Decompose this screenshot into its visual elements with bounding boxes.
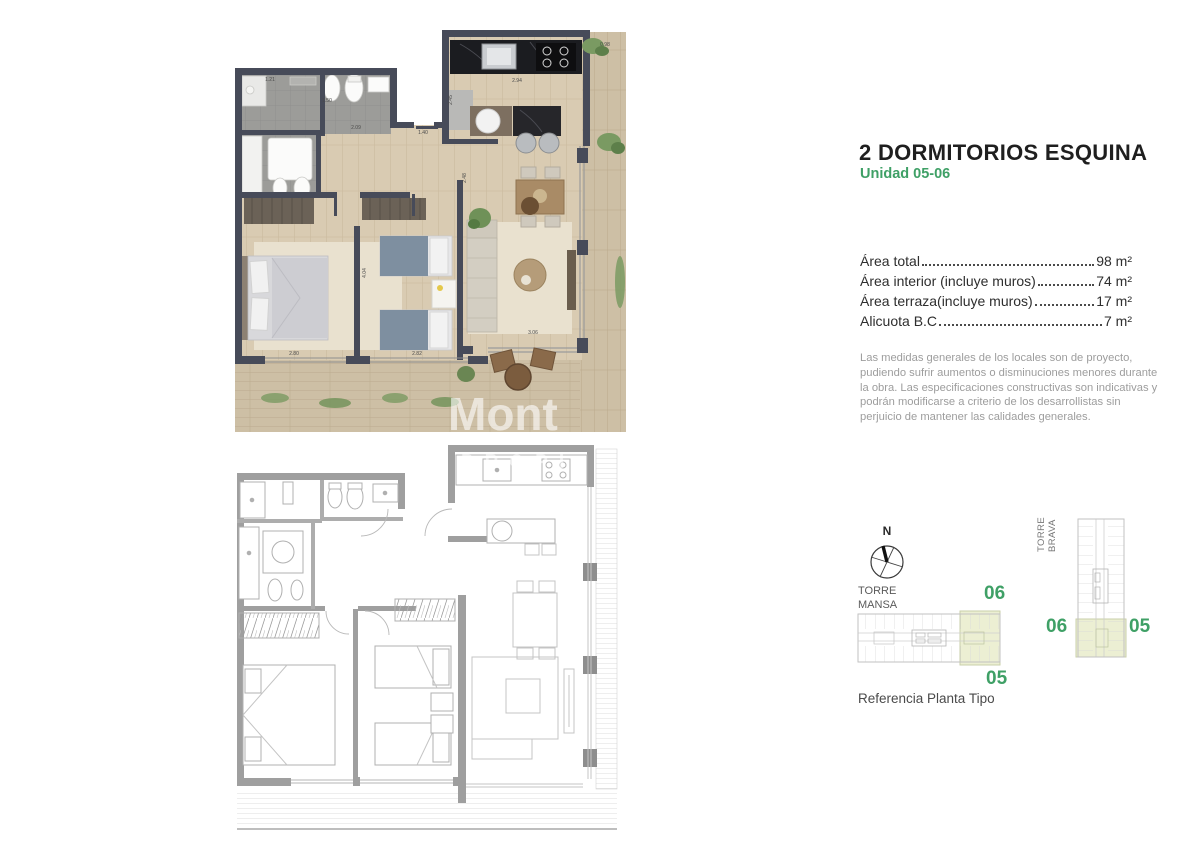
svg-text:3.06: 3.06: [528, 330, 538, 336]
dotted-leader: [939, 324, 1102, 326]
dotted-leader: [1038, 284, 1094, 286]
area-row-terraza: Área terraza(incluye muros) 17 m²: [860, 293, 1132, 309]
rendered-floor-plan: 1.21 1.50 2.09 1.40 2.45 2.94 0.98 2.80 …: [230, 30, 630, 435]
mansa-cells: [858, 646, 1000, 662]
brava-cells: [1108, 519, 1124, 657]
svg-text:2.09: 2.09: [351, 125, 361, 131]
technical-floor-plan: PROPI: [225, 443, 625, 837]
brava-unit-06: 06: [1046, 616, 1067, 638]
disclaimer-text: Las medidas generales de los locales son…: [860, 351, 1162, 425]
mansa-cells: [858, 614, 1000, 629]
brava-cells: [1078, 519, 1093, 657]
page-title: 2 DORMITORIOS ESQUINA: [859, 140, 1169, 166]
area-label: Área interior (incluye muros): [860, 273, 1036, 289]
unit-subtitle: Unidad 05-06: [860, 166, 950, 182]
area-value: 17 m²: [1096, 293, 1132, 309]
svg-text:2.80: 2.80: [289, 351, 299, 357]
svg-text:1.21: 1.21: [265, 77, 275, 83]
torre-mansa-diagram: [856, 608, 1002, 668]
brochure-page: 1.21 1.50 2.09 1.40 2.45 2.94 0.98 2.80 …: [0, 0, 1200, 848]
reference-caption: Referencia Planta Tipo: [858, 691, 995, 706]
torre-brava-diagram: [1072, 517, 1130, 659]
svg-text:1.50: 1.50: [322, 98, 332, 104]
svg-text:2.82: 2.82: [412, 351, 422, 357]
area-value: 98 m²: [1096, 253, 1132, 269]
tech-terrace-deck: [237, 449, 617, 829]
svg-text:2.94: 2.94: [512, 78, 522, 84]
mansa-unit-06: 06: [984, 583, 1005, 605]
brava-unit-05: 05: [1129, 616, 1150, 638]
compass-north-label: N: [883, 524, 892, 538]
area-row-interior: Área interior (incluye muros) 74 m²: [860, 273, 1132, 289]
area-row-alicuota: Alicuota B.C 7 m²: [860, 313, 1132, 329]
svg-text:4.04: 4.04: [362, 268, 368, 278]
exterior-notch: [394, 30, 444, 125]
svg-text:0.98: 0.98: [600, 42, 610, 48]
watermark-text: PROPI: [461, 452, 575, 473]
dotted-leader: [922, 264, 1094, 266]
area-row-total: Área total 98 m²: [860, 253, 1132, 269]
svg-text:1.40: 1.40: [418, 130, 428, 136]
svg-text:2.45: 2.45: [448, 95, 454, 105]
area-value: 74 m²: [1096, 273, 1132, 289]
torre-brava-label-wrap: TORRE BRAVA: [1036, 508, 1066, 570]
area-label: Área terraza(incluye muros): [860, 293, 1033, 309]
watermark-text: Mont: [448, 388, 558, 435]
area-value: 7 m²: [1104, 313, 1132, 329]
mansa-unit-05: 05: [986, 668, 1007, 690]
compass-needle: [883, 546, 887, 562]
compass-rose: N: [860, 522, 914, 588]
area-label: Área total: [860, 253, 920, 269]
area-label: Alicuota B.C: [860, 313, 937, 329]
svg-text:2.48: 2.48: [462, 173, 468, 183]
area-table: Área total 98 m² Área interior (incluye …: [860, 253, 1132, 333]
torre-brava-label: TORRE BRAVA: [1036, 508, 1059, 552]
dotted-leader: [1035, 304, 1094, 306]
